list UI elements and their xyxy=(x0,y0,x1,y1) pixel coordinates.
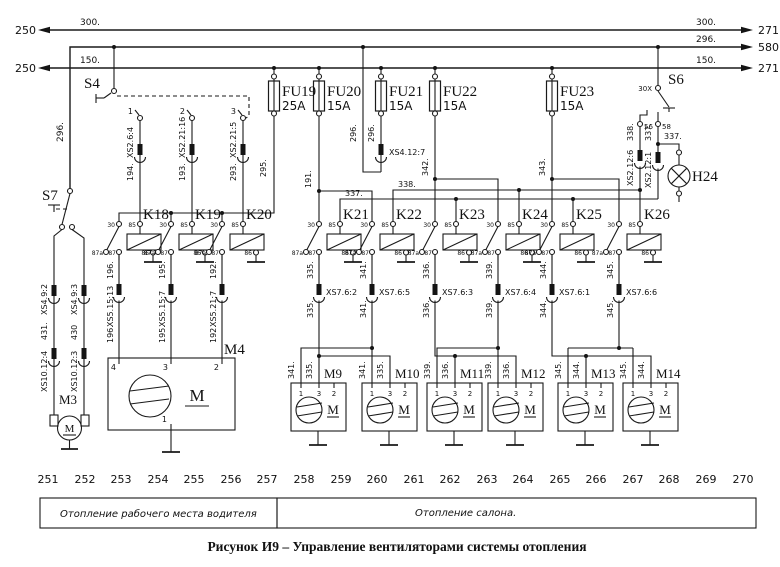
fan-wire-1: 339. xyxy=(423,361,432,379)
relay-conn: XS7.6:5 xyxy=(379,288,410,297)
s6-terminal-30x: 30X xyxy=(638,85,652,93)
s6-wire-338: 338. xyxy=(626,123,635,141)
fan-term-3: 3 xyxy=(514,390,518,398)
fuse-name: FU19 xyxy=(282,84,316,100)
term-30: 30 xyxy=(423,222,431,229)
scale-number: 266 xyxy=(586,473,607,486)
schematic-page: 250 300. 300. 271 296. 580 296. 250 150.… xyxy=(0,0,780,567)
term-30: 30 xyxy=(107,222,115,229)
relay-name: K22 xyxy=(396,207,422,223)
scale-number: 268 xyxy=(659,473,680,486)
h24-branch-wire: 337. xyxy=(664,132,682,141)
connector-xs7-6-6 xyxy=(614,284,625,303)
bus-150-arrow-left xyxy=(38,65,50,71)
scale-number: 267 xyxy=(623,473,644,486)
s7-right-wire: 430 xyxy=(70,325,79,340)
fan-term-2: 2 xyxy=(664,390,668,398)
s4-wire-2: 193. xyxy=(178,163,187,181)
scale-number: 253 xyxy=(111,473,132,486)
switch-s4 xyxy=(96,89,249,121)
fan-term-2: 2 xyxy=(599,390,603,398)
bus-300-left-num: 250 xyxy=(15,24,36,37)
scale-number: 256 xyxy=(221,473,242,486)
fan-wire-3: 336. xyxy=(502,361,511,379)
fan-name: M12 xyxy=(521,366,546,381)
relay-wire2: 345. xyxy=(606,300,615,318)
fuse-FU23 xyxy=(547,68,558,116)
wire-296a-label: 296. xyxy=(349,124,358,142)
s6-wire-337: 337. xyxy=(644,123,653,141)
fan-name: M14 xyxy=(656,366,681,381)
m4-term-3: 3 xyxy=(163,363,168,372)
scale-number: 263 xyxy=(477,473,498,486)
relay-wire: 345. xyxy=(606,261,615,279)
relay-wire2: 196. xyxy=(106,325,115,343)
fan-letter: M xyxy=(327,402,339,417)
fuse-name: FU21 xyxy=(389,84,423,100)
fuse-rating: 15A xyxy=(389,99,413,113)
term-87a: 87a xyxy=(195,250,207,257)
fuse-rating: 15A xyxy=(560,99,584,113)
fan-name: M10 xyxy=(395,366,420,381)
wire-338-label: 338. xyxy=(398,180,416,189)
s4-contact-1: 1 xyxy=(128,107,133,116)
fan-term-2: 2 xyxy=(529,390,533,398)
fan-term-1: 1 xyxy=(299,390,303,398)
s4-contact-2: 2 xyxy=(180,107,185,116)
wire-191-label: 191. xyxy=(304,170,313,188)
relay-wire: 195. xyxy=(158,261,167,279)
s6-conn-56: XS2.12:6 xyxy=(626,150,635,186)
term-30: 30 xyxy=(486,222,494,229)
wire-295 xyxy=(119,116,274,222)
bus-150-wire-left: 150. xyxy=(80,56,100,66)
lamp-h24-name: H24 xyxy=(692,169,718,185)
fuse-name: FU23 xyxy=(560,84,594,100)
wiring-diagram: 250 300. 300. 271 296. 580 296. 250 150.… xyxy=(0,0,780,567)
term-87a: 87a xyxy=(92,250,104,257)
relay-name: K20 xyxy=(246,207,272,223)
relay-conn: XS7.6:1 xyxy=(559,288,590,297)
fan-letter: M xyxy=(463,402,475,417)
wire-337-label: 337. xyxy=(345,189,363,198)
fuse-FU22 xyxy=(430,68,441,116)
labels: 250 300. 300. 271 296. 580 296. 250 150.… xyxy=(15,18,779,554)
term-30: 30 xyxy=(307,222,315,229)
fan-wire-3: 335. xyxy=(305,361,314,379)
connector-xs5-21-7 xyxy=(217,284,228,303)
s7-right-conn1: XS4.9:3 xyxy=(70,284,79,315)
fuse-FU19 xyxy=(269,68,280,116)
relay-name: K18 xyxy=(143,207,169,223)
fuse-FU21 xyxy=(376,68,387,116)
bus-150-left-num: 250 xyxy=(15,62,36,75)
term-86: 86 xyxy=(574,250,582,257)
bus-296-drop-wire: 296. xyxy=(56,122,66,142)
relay-conn: XS7.6:4 xyxy=(505,288,536,297)
scale-number: 258 xyxy=(294,473,315,486)
connector-xs7-6-3 xyxy=(430,284,441,303)
term-87a: 87a xyxy=(345,250,357,257)
fan-term-3: 3 xyxy=(388,390,392,398)
connector-xs7-6-2 xyxy=(314,284,325,303)
s4-wire-3: 293. xyxy=(229,163,238,181)
relay-name: K26 xyxy=(644,207,670,223)
fan-wire-3: 344. xyxy=(572,361,581,379)
fan-wire-1: 345. xyxy=(619,361,628,379)
relay-wire: 336. xyxy=(422,261,431,279)
scale-number: 252 xyxy=(75,473,96,486)
wire-338-line xyxy=(393,190,640,222)
fan-term-3: 3 xyxy=(453,390,457,398)
relay-name: K25 xyxy=(576,207,602,223)
relay-wire2: 336. xyxy=(422,300,431,318)
relay-name: K19 xyxy=(195,207,221,223)
s4-conn-2: XS2.21:16 xyxy=(178,117,187,158)
term-87a: 87a xyxy=(525,250,537,257)
m4-name: M4 xyxy=(224,342,245,358)
relay-conn: XS5.15:7 xyxy=(158,291,167,327)
s6-contact-58: 58 xyxy=(662,123,671,131)
m4-term-2: 2 xyxy=(214,363,219,372)
connector-xs7-6-1 xyxy=(547,284,558,303)
wire-337-line xyxy=(340,199,658,222)
term-85: 85 xyxy=(628,222,636,229)
fuse-rating: 15A xyxy=(327,99,351,113)
term-87a: 87a xyxy=(408,250,420,257)
s7-left-wire: 431. xyxy=(40,322,49,340)
connector-xs7-6-4 xyxy=(493,284,504,303)
fan-term-2: 2 xyxy=(403,390,407,398)
s4-conn-3: XS2.21:5 xyxy=(229,122,238,158)
fan-letter: M xyxy=(659,402,671,417)
fuse-name: FU20 xyxy=(327,84,361,100)
s6-name: S6 xyxy=(668,72,684,88)
relay-wire2: 192. xyxy=(209,325,218,343)
fan-wire-1: 341. xyxy=(358,361,367,379)
fan-wire-3: 335. xyxy=(376,361,385,379)
fan-term-3: 3 xyxy=(649,390,653,398)
fan-term-3: 3 xyxy=(584,390,588,398)
relay-name: K23 xyxy=(459,207,485,223)
fan-name: M9 xyxy=(324,366,342,381)
fan-term-1: 1 xyxy=(435,390,439,398)
connector-xs2-12-1 xyxy=(653,152,664,171)
scale-number: 265 xyxy=(550,473,571,486)
scale-number: 269 xyxy=(696,473,717,486)
relay-wire2: 339. xyxy=(485,300,494,318)
bus-300-right-num: 271 xyxy=(758,24,779,37)
scale-number: 259 xyxy=(331,473,352,486)
relay-wire: 196. xyxy=(106,261,115,279)
term-87: 87 xyxy=(541,250,549,257)
relay-wire: 339. xyxy=(485,261,494,279)
zone-label-salon: Отопление салона. xyxy=(415,508,516,519)
scale-number: 270 xyxy=(733,473,754,486)
term-87: 87 xyxy=(108,250,116,257)
fuse-rating: 15A xyxy=(443,99,467,113)
term-86: 86 xyxy=(457,250,465,257)
scale-number: 257 xyxy=(257,473,278,486)
s4-conn-1: XS2.6:4 xyxy=(126,127,135,158)
conn-xs4-12-7-label: XS4.12:7 xyxy=(389,148,425,157)
zone-box-right xyxy=(277,498,756,528)
relay-wire: 335. xyxy=(306,261,315,279)
wire-342-label: 342. xyxy=(421,158,430,176)
term-86: 86 xyxy=(244,250,252,257)
fan-letter: M xyxy=(398,402,410,417)
term-85: 85 xyxy=(561,222,569,229)
fan-wire-3: 336. xyxy=(441,361,450,379)
relay-wire2: 195. xyxy=(158,325,167,343)
term-30: 30 xyxy=(607,222,615,229)
scale-number: 264 xyxy=(513,473,534,486)
bus-296-wire-right: 296. xyxy=(696,35,716,45)
connector-xs7-6-5 xyxy=(367,284,378,303)
fan-term-1: 1 xyxy=(631,390,635,398)
s4-name: S4 xyxy=(84,76,100,92)
term-87: 87 xyxy=(487,250,495,257)
fan-wire-1: 339. xyxy=(484,361,493,379)
term-87a: 87a xyxy=(292,250,304,257)
relay-conn: XS5.15:13 xyxy=(106,286,115,327)
relay-conn: XS7.6:3 xyxy=(442,288,473,297)
m3-name: M3 xyxy=(59,392,77,407)
wire-295-label: 295. xyxy=(259,159,268,177)
relay-conn: XS7.6:2 xyxy=(326,288,357,297)
relay-conn: XS5.21:7 xyxy=(209,291,218,327)
term-86: 86 xyxy=(394,250,402,257)
relay-wire: 344. xyxy=(539,261,548,279)
zone-label-driver: Отопление рабочего места водителя xyxy=(60,508,257,520)
relay-name: K21 xyxy=(343,207,369,223)
s7-left-conn1: XS4.9:2 xyxy=(40,284,49,315)
bus-150-right-num: 271 xyxy=(758,62,779,75)
fuse-name: FU22 xyxy=(443,84,477,100)
term-85: 85 xyxy=(128,222,136,229)
bus-300-arrow-left xyxy=(38,27,50,33)
fan-term-1: 1 xyxy=(496,390,500,398)
wire-431 xyxy=(54,230,62,416)
fan-letter: M xyxy=(594,402,606,417)
relay-conn: XS7.6:6 xyxy=(626,288,657,297)
fan-name: M13 xyxy=(591,366,616,381)
fan-term-1: 1 xyxy=(370,390,374,398)
bus-300-wire-left: 300. xyxy=(80,18,100,28)
relay-wire2: 335. xyxy=(306,300,315,318)
term-85: 85 xyxy=(180,222,188,229)
scale-number: 255 xyxy=(184,473,205,486)
term-87: 87 xyxy=(608,250,616,257)
term-87a: 87a xyxy=(592,250,604,257)
term-85: 85 xyxy=(231,222,239,229)
term-85: 85 xyxy=(507,222,515,229)
s7-right-conn2: XS10.12:3 xyxy=(70,351,79,392)
term-85: 85 xyxy=(444,222,452,229)
term-87: 87 xyxy=(361,250,369,257)
wire-296b-label: 296. xyxy=(367,124,376,142)
term-87a: 87a xyxy=(144,250,156,257)
relay-wire: 192. xyxy=(209,261,218,279)
fan-term-2: 2 xyxy=(332,390,336,398)
h24-branch xyxy=(658,144,679,150)
scale-number: 260 xyxy=(367,473,388,486)
term-30: 30 xyxy=(159,222,167,229)
term-86: 86 xyxy=(641,250,649,257)
bus-150-wire-right: 150. xyxy=(696,56,716,66)
fan-letter: M xyxy=(524,402,536,417)
term-87: 87 xyxy=(424,250,432,257)
scale-number: 251 xyxy=(38,473,59,486)
m3-letter: M xyxy=(65,423,75,435)
term-30: 30 xyxy=(540,222,548,229)
bus-296-arrow-right xyxy=(741,44,753,50)
m4-term-1: 1 xyxy=(162,415,167,424)
s4-wire-1: 194. xyxy=(126,163,135,181)
term-87a: 87a xyxy=(471,250,483,257)
fan-term-2: 2 xyxy=(468,390,472,398)
scale-number: 261 xyxy=(404,473,425,486)
fan-term-3: 3 xyxy=(317,390,321,398)
scale-number: 262 xyxy=(440,473,461,486)
term-85: 85 xyxy=(381,222,389,229)
s7-left-conn2: XS10.12:4 xyxy=(40,351,49,392)
term-30: 30 xyxy=(210,222,218,229)
relay-wire2: 341. xyxy=(359,300,368,318)
fan-wire-1: 341. xyxy=(287,361,296,379)
term-85: 85 xyxy=(328,222,336,229)
bus-300-arrow-right xyxy=(741,27,753,33)
term-87: 87 xyxy=(308,250,316,257)
fan-wire-3: 344. xyxy=(637,361,646,379)
fan-term-1: 1 xyxy=(566,390,570,398)
relay-wire: 341. xyxy=(359,261,368,279)
connector-xs5-15-13 xyxy=(114,284,125,303)
bus-296-right-num: 580 xyxy=(758,41,779,54)
s4-contact-3: 3 xyxy=(231,107,236,116)
fuse-rating: 25A xyxy=(282,99,306,113)
s6-conn-58: XS2.12:1 xyxy=(644,152,653,188)
connector-xs5-15-7 xyxy=(166,284,177,303)
figure-caption: Рисунок И9 – Управление вентиляторами си… xyxy=(207,539,586,554)
m4-letter: M xyxy=(189,386,204,405)
bus-150-arrow-right xyxy=(741,65,753,71)
fan-wire-1: 345. xyxy=(554,361,563,379)
term-30: 30 xyxy=(360,222,368,229)
term-87: 87 xyxy=(211,250,219,257)
wire-343-label: 343. xyxy=(538,158,547,176)
relay-name: K24 xyxy=(522,207,548,223)
fan-name: M11 xyxy=(460,366,484,381)
m4-term-4: 4 xyxy=(111,363,116,372)
relay-wire2: 344. xyxy=(539,300,548,318)
bus-300-wire-right: 300. xyxy=(696,18,716,28)
s7-name: S7 xyxy=(42,188,58,204)
term-87: 87 xyxy=(160,250,168,257)
scale-number: 254 xyxy=(148,473,169,486)
